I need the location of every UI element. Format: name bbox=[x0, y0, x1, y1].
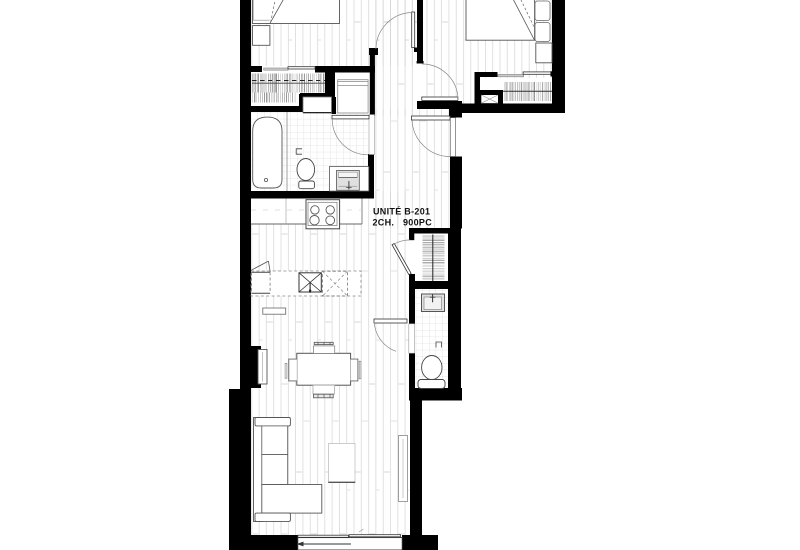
svg-text:2CH.: 2CH. bbox=[373, 218, 395, 228]
svg-text:UNITÉ B-201: UNITÉ B-201 bbox=[373, 207, 430, 217]
svg-text:900PC: 900PC bbox=[403, 218, 432, 228]
